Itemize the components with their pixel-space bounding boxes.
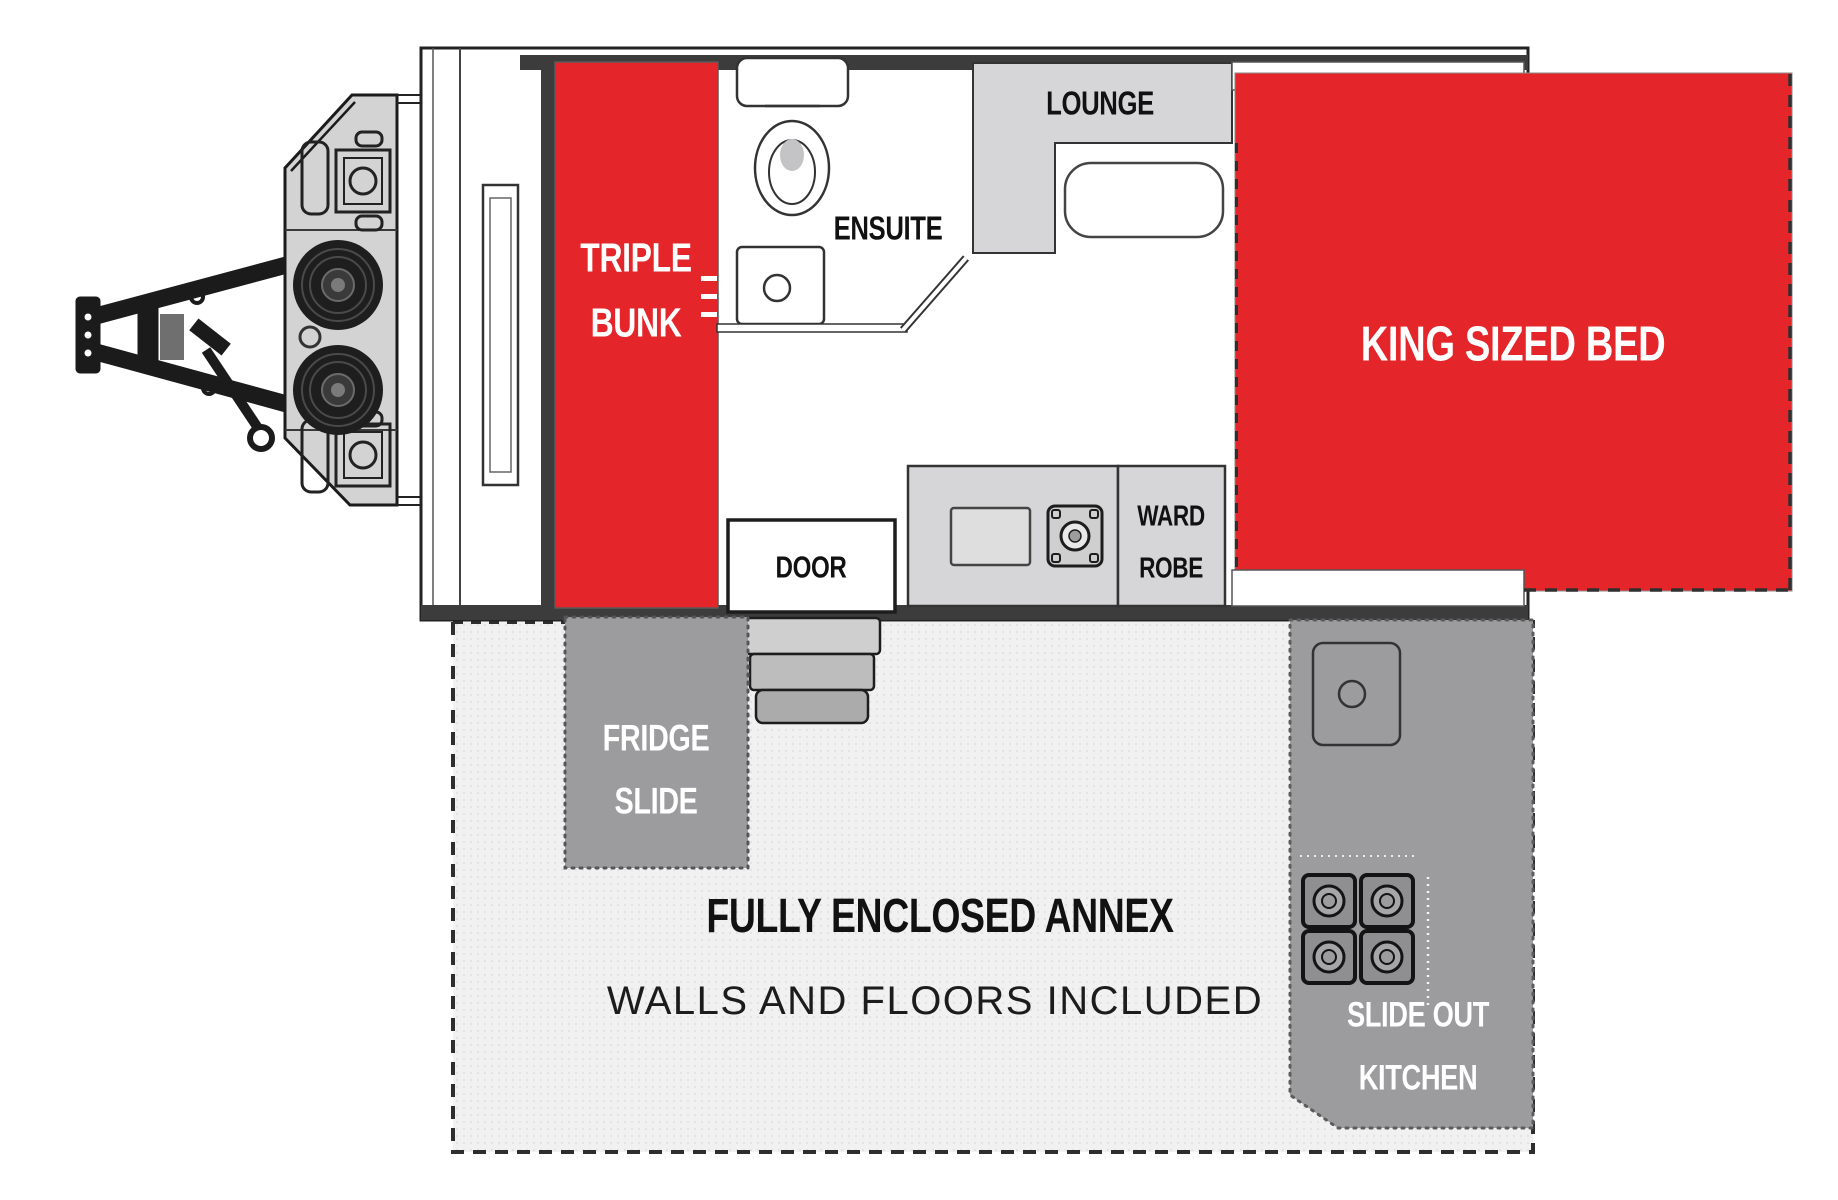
ensuite-wall: [717, 324, 907, 332]
bench-sink-icon: [951, 508, 1030, 565]
annex-title: FULLY ENCLOSED ANNEX: [706, 893, 1173, 941]
triple-bunk-label-line1: TRIPLE: [580, 238, 691, 279]
drawbar-hitch: [76, 263, 294, 449]
annex-subtitle: WALLS AND FLOORS INCLUDED: [607, 981, 1263, 1021]
wardrobe-label-line1: WARD: [1137, 503, 1205, 532]
slide-out-kitchen-region: [1290, 620, 1533, 1128]
front-window: [483, 185, 518, 485]
outdoor-sink-icon: [1313, 643, 1400, 745]
door-label: DOOR: [776, 552, 847, 583]
bench-cooktop-icon: [1048, 506, 1102, 566]
wardrobe-region: [1118, 466, 1225, 606]
spare-wheel-bottom: [293, 345, 383, 435]
floorplan-canvas: TRIPLE BUNK ENSUITE LOUNGE KING SIZED BE…: [0, 0, 1838, 1200]
king-bed-label: KING SIZED BED: [1361, 321, 1666, 370]
entry-steps: [744, 618, 880, 723]
slide-out-kitchen-label-line2: KITCHEN: [1359, 1061, 1478, 1096]
wardrobe-label-line2: ROBE: [1139, 555, 1203, 584]
ensuite-label: ENSUITE: [834, 212, 943, 245]
sink-icon: [737, 247, 824, 324]
fridge-slide-label-line2: SLIDE: [614, 783, 697, 820]
lounge-table: [1065, 163, 1223, 237]
triple-bunk-label-line2: BUNK: [591, 303, 682, 344]
front-storage-box: [285, 95, 421, 505]
kitchen-bench-region: [908, 466, 1118, 606]
spare-wheel-top: [293, 240, 383, 330]
fridge-slide-label-line1: FRIDGE: [603, 720, 710, 757]
slide-out-kitchen-label-line1: SLIDE OUT: [1347, 998, 1489, 1033]
lounge-label: LOUNGE: [1046, 87, 1154, 120]
